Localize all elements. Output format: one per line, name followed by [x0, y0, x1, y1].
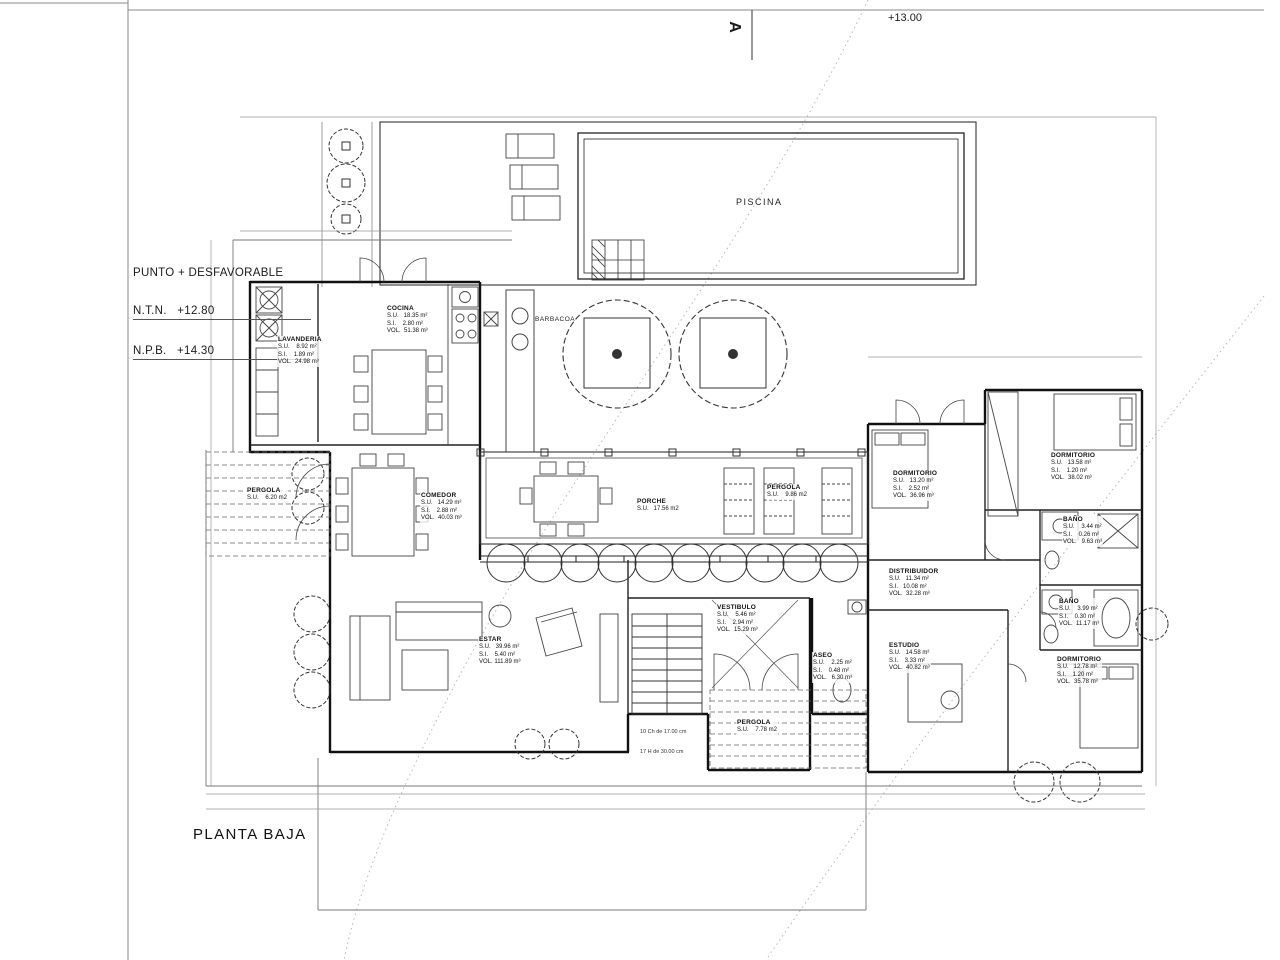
room-label: PERGOLA S.U. 9.86 m2: [766, 484, 808, 500]
room-stat-line: S.U. 6.20 m2: [247, 495, 287, 503]
room-stats: S.U. 13.58 m²S.I. 1.20 m²VOL. 38.02 m³: [1051, 460, 1095, 483]
barbecue-label: BARBACOA: [535, 316, 575, 323]
room-stat-line: VOL. 35.78 m³: [1057, 679, 1101, 687]
room-label: PORCHE S.U. 17.56 m2: [636, 498, 680, 514]
room-stat-line: VOL. 36.96 m³: [893, 493, 937, 501]
room-stat-line: S.I. 1.89 m²: [278, 352, 322, 360]
entry-door-arcs: [714, 654, 798, 690]
pool-label: PISCINA: [736, 197, 783, 207]
room-stat-line: S.U. 3.99 m²: [1059, 606, 1099, 614]
room-stat-line: S.I. 1.20 m²: [1057, 672, 1101, 680]
room-stat-line: S.U. 17.56 m2: [637, 506, 679, 514]
room-stat-line: VOL. 15.29 m³: [717, 627, 758, 635]
study-furniture: [908, 664, 962, 722]
room-stat-line: S.I. 5.40 m²: [479, 652, 520, 660]
plot-lines: [318, 758, 866, 910]
room-name: PERGOLA: [247, 487, 287, 495]
room-name: PORCHE: [637, 498, 679, 506]
level-annotation: +13.00: [888, 12, 922, 24]
room-stat-line: VOL. 32.28 m³: [889, 591, 938, 599]
facade-glazing: [480, 556, 868, 562]
room-stat-line: VOL. 9.63 m³: [1063, 539, 1102, 547]
dining-furniture: [336, 454, 428, 556]
room-stats: S.U. 2.25 m²S.I. 0.48 m²VOL. 6.30 m³: [813, 660, 852, 683]
room-stat-line: VOL. 24.98 m³: [278, 359, 322, 367]
room-stats: S.U. 12.78 m²S.I. 1.20 m²VOL. 35.78 m³: [1057, 664, 1101, 687]
room-label: VESTIBULO S.U. 5.46 m²S.I. 2.94 m²VOL. 1…: [716, 604, 759, 635]
room-stat-line: S.I. 0.26 m²: [1063, 532, 1102, 540]
room-stat-line: S.U. 11.34 m²: [889, 576, 938, 584]
room-stat-line: VOL. 51.38 m³: [387, 328, 428, 336]
room-stats: S.U. 5.46 m²S.I. 2.94 m²VOL. 15.29 m³: [717, 612, 758, 635]
porch: [477, 449, 868, 544]
stairs: [632, 614, 702, 714]
room-label: DISTRIBUIDOR S.U. 11.34 m²S.I. 10.08 m²V…: [888, 568, 939, 599]
room-name: LAVANDERIA: [278, 336, 322, 344]
room-stat-line: S.U. 3.44 m²: [1063, 524, 1102, 532]
section-marker-letter: A: [725, 21, 743, 33]
room-stat-line: S.U. 9.86 m2: [767, 492, 807, 500]
stair-note: 10 Ch de 17.00 cm 17 H de 30.00 cm: [640, 716, 686, 762]
room-stat-line: S.U. 39.96 m²: [479, 644, 520, 652]
room-stats: S.U. 14.29 m²S.I. 2.88 m²VOL. 40.03 m³: [421, 500, 462, 523]
room-label: LAVANDERIA S.U. 8.92 m²S.I. 1.89 m²VOL. …: [277, 336, 323, 367]
room-stats: S.U. 7.78 m2: [737, 727, 777, 735]
planter-trees: [322, 122, 372, 287]
room-stat-line: S.U. 14.58 m²: [889, 650, 930, 658]
room-label: PERGOLA S.U. 7.78 m2: [736, 719, 778, 735]
room-stats: S.U. 6.20 m2: [247, 495, 287, 503]
room-label: ASEO S.U. 2.25 m²S.I. 0.48 m²VOL. 6.30 m…: [812, 652, 853, 683]
datum-note-title: PUNTO + DESFAVORABLE: [133, 267, 311, 280]
pergola-left: [206, 452, 330, 556]
pool-steps: [592, 240, 644, 280]
stair-note-line: 17 H de 30.00 cm: [640, 749, 686, 756]
floor-plan-drawing: PUNTO + DESFAVORABLE N.T.N. +12.80 N.P.B…: [0, 0, 1280, 960]
sun-loungers: [506, 134, 560, 220]
room-stat-line: VOL. 38.02 m³: [1051, 475, 1095, 483]
room-name: COMEDOR: [421, 492, 462, 500]
section-cut-curves: [344, 0, 1264, 960]
room-stat-line: VOL. 40.03 m³: [421, 515, 462, 523]
room-stats: S.U. 9.86 m2: [767, 492, 807, 500]
room-stat-line: VOL. 6.30 m³: [813, 675, 852, 683]
datum-ntn: N.T.N. +12.80: [133, 305, 311, 320]
room-label: ESTAR S.U. 39.96 m²S.I. 5.40 m²VOL. 111.…: [478, 636, 521, 667]
room-stat-line: S.U. 5.46 m²: [717, 612, 758, 620]
dimension-chains: [206, 117, 1156, 809]
room-stats: S.U. 39.96 m²S.I. 5.40 m²VOL. 111.89 m³: [479, 644, 520, 667]
room-stat-line: S.U. 13.20 m²: [893, 478, 937, 486]
room-label: COMEDOR S.U. 14.29 m²S.I. 2.88 m²VOL. 40…: [420, 492, 463, 523]
room-stats: S.U. 11.34 m²S.I. 10.08 m²VOL. 32.28 m³: [889, 576, 938, 599]
room-label: DORMITORIO S.U. 12.78 m²S.I. 1.20 m²VOL.…: [1056, 656, 1102, 687]
room-stat-line: S.I. 2.88 m²: [421, 508, 462, 516]
room-label: ESTUDIO S.U. 14.58 m²S.I. 3.33 m²VOL. 40…: [888, 642, 931, 673]
room-stat-line: S.U. 7.78 m2: [737, 727, 777, 735]
room-label: BAÑO S.U. 3.44 m²S.I. 0.26 m²VOL. 9.63 m…: [1062, 516, 1103, 547]
room-stat-line: S.U. 13.58 m²: [1051, 460, 1095, 468]
room-stat-line: S.I. 10.08 m²: [889, 584, 938, 592]
room-stat-line: S.U. 12.78 m²: [1057, 664, 1101, 672]
room-label: PERGOLA S.U. 6.20 m2: [246, 487, 288, 503]
room-name: ASEO: [813, 652, 852, 660]
room-stat-line: S.U. 2.25 m²: [813, 660, 852, 668]
room-stat-line: VOL. 11.17 m³: [1059, 621, 1099, 629]
room-stats: S.U. 3.99 m²S.I. 0.30 m²VOL. 11.17 m³: [1059, 606, 1099, 629]
stair-note-line: 10 Ch de 17.00 cm: [640, 729, 686, 736]
room-name: DORMITORIO: [1051, 452, 1095, 460]
drawing-title: PLANTA BAJA: [193, 826, 307, 843]
room-name: DORMITORIO: [1057, 656, 1101, 664]
room-stat-line: S.I. 2.80 m²: [387, 321, 428, 329]
room-label: DORMITORIO S.U. 13.58 m²S.I. 1.20 m²VOL.…: [1050, 452, 1096, 483]
room-stat-line: S.I. 1.20 m²: [1051, 468, 1095, 476]
room-stat-line: S.U. 18.35 m²: [387, 313, 428, 321]
room-name: PERGOLA: [737, 719, 777, 727]
room-stats: S.U. 13.20 m²S.I. 2.52 m²VOL. 36.96 m³: [893, 478, 937, 501]
room-name: VESTIBULO: [717, 604, 758, 612]
room-stat-line: S.I. 2.94 m²: [717, 620, 758, 628]
room-stat-line: S.I. 0.48 m²: [813, 668, 852, 676]
room-stats: S.U. 18.35 m²S.I. 2.80 m²VOL. 51.38 m³: [387, 313, 428, 336]
room-label: BAÑO S.U. 3.99 m²S.I. 0.30 m²VOL. 11.17 …: [1058, 598, 1100, 629]
room-stats: S.U. 17.56 m2: [637, 506, 679, 514]
terrace-outline: [380, 122, 976, 285]
room-name: BAÑO: [1059, 598, 1099, 606]
room-stat-line: S.U. 14.29 m²: [421, 500, 462, 508]
room-stat-line: S.I. 2.52 m²: [893, 486, 937, 494]
room-name: ESTAR: [479, 636, 520, 644]
courtyard-trees: [563, 300, 787, 408]
room-stat-line: S.I. 0.30 m²: [1059, 614, 1099, 622]
room-stat-line: VOL. 40.82 m³: [889, 665, 930, 673]
room-name: DORMITORIO: [893, 470, 937, 478]
room-name: PERGOLA: [767, 484, 807, 492]
room-stats: S.U. 3.44 m²S.I. 0.26 m²VOL. 9.63 m³: [1063, 524, 1102, 547]
room-label: COCINA S.U. 18.35 m²S.I. 2.80 m²VOL. 51.…: [386, 305, 429, 336]
room-stats: S.U. 8.92 m²S.I. 1.89 m²VOL. 24.98 m³: [278, 344, 322, 367]
room-name: ESTUDIO: [889, 642, 930, 650]
room-name: DISTRIBUIDOR: [889, 568, 938, 576]
room-stats: S.U. 14.58 m²S.I. 3.33 m²VOL. 40.82 m³: [889, 650, 930, 673]
room-name: BAÑO: [1063, 516, 1102, 524]
room-stat-line: S.I. 3.33 m²: [889, 658, 930, 666]
barbacoa-counter: [506, 290, 534, 452]
porch-awning-scallops: [487, 544, 858, 582]
room-name: COCINA: [387, 305, 428, 313]
room-stat-line: VOL. 111.89 m³: [479, 659, 520, 667]
room-stat-line: S.U. 8.92 m²: [278, 344, 322, 352]
room-label: DORMITORIO S.U. 13.20 m²S.I. 2.52 m²VOL.…: [892, 470, 938, 501]
